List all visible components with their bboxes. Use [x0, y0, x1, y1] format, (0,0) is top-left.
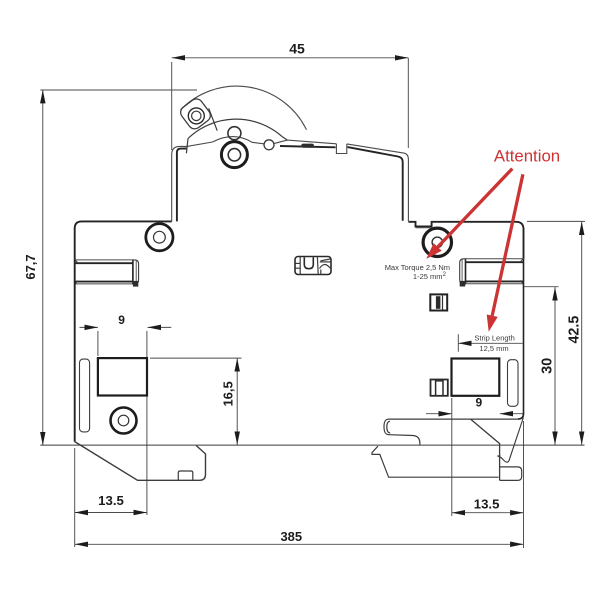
svg-text:Attention: Attention [494, 147, 560, 166]
svg-text:16,5: 16,5 [220, 381, 235, 406]
svg-text:1-25 mm: 1-25 mm [413, 272, 443, 281]
svg-text:9: 9 [476, 396, 483, 410]
svg-text:12,5 mm: 12,5 mm [479, 344, 508, 353]
svg-text:67,7: 67,7 [23, 254, 38, 279]
svg-text:30: 30 [540, 358, 556, 374]
svg-text:9: 9 [118, 313, 125, 327]
svg-text:13.5: 13.5 [474, 496, 500, 511]
svg-text:2: 2 [443, 272, 447, 278]
svg-text:45: 45 [289, 41, 305, 57]
svg-text:Strip Length: Strip Length [474, 334, 514, 343]
svg-text:Max Torque 2,5 Nm: Max Torque 2,5 Nm [385, 263, 450, 272]
svg-text:385: 385 [280, 529, 302, 544]
svg-text:42.5: 42.5 [566, 316, 582, 344]
svg-text:13.5: 13.5 [98, 493, 124, 508]
